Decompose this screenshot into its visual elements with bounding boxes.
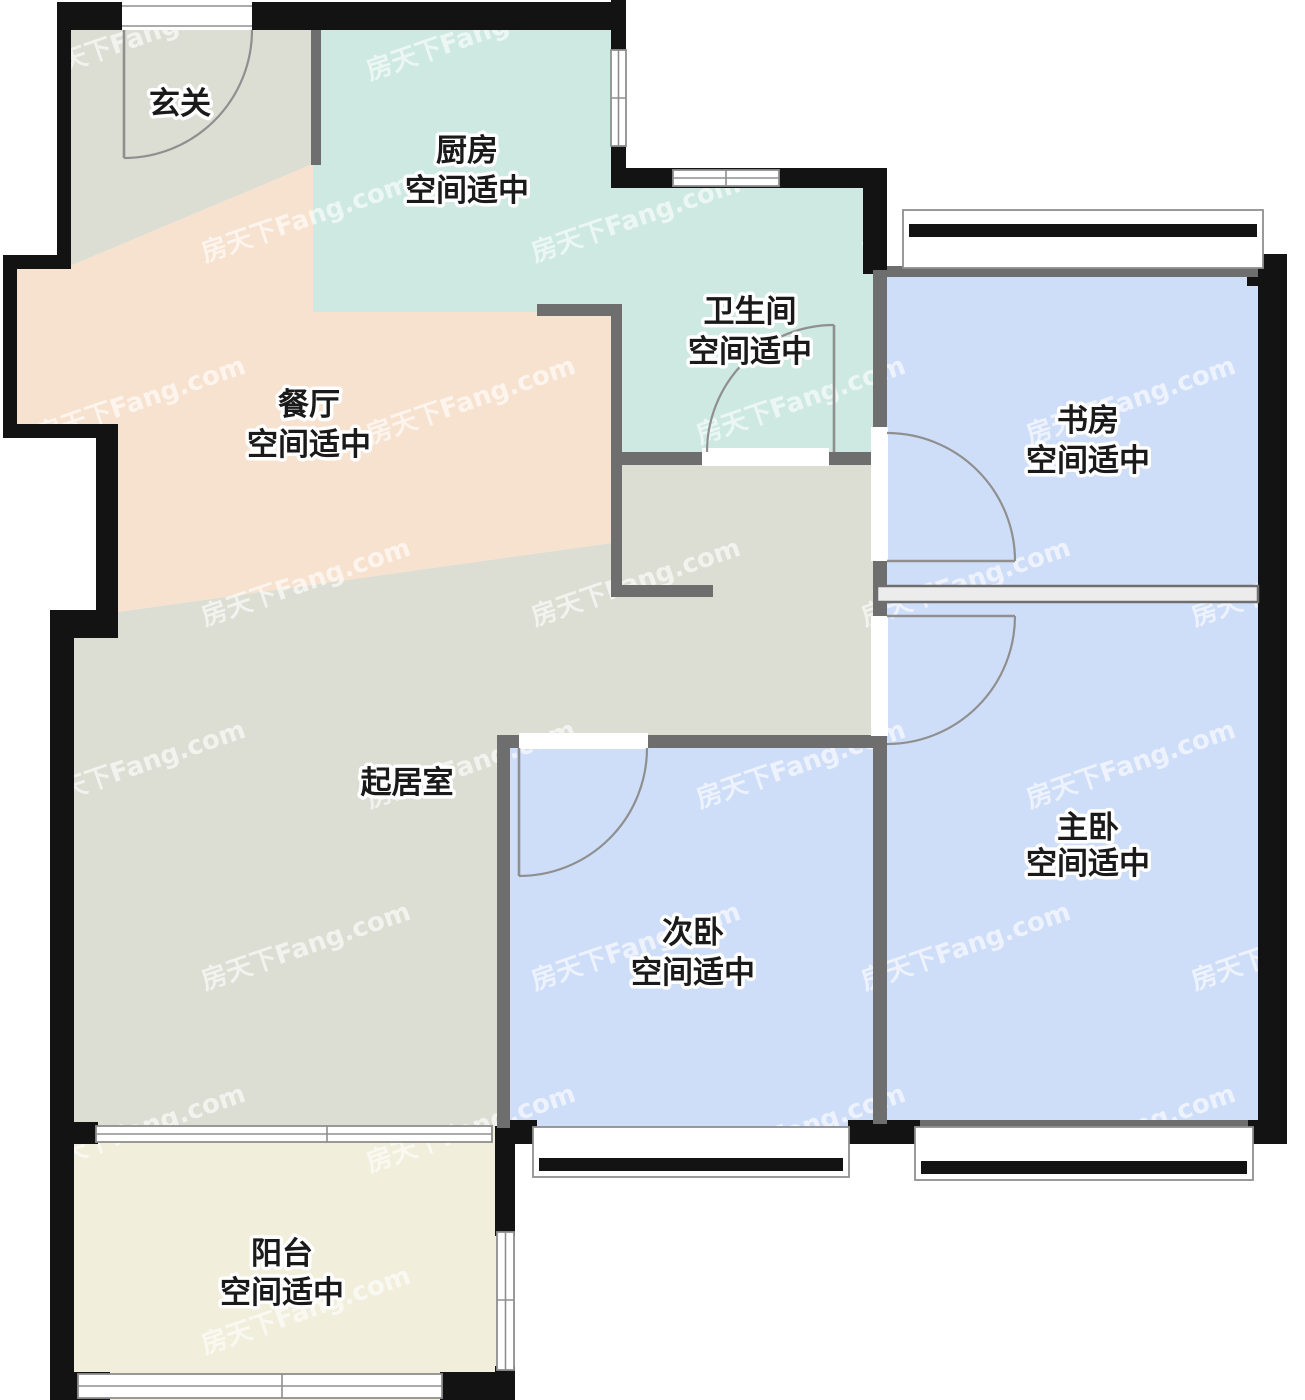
wall-balcony-top-stub: [74, 1122, 98, 1144]
wall-bathroom-bottom-left: [620, 452, 704, 465]
study-door-opening: [871, 427, 888, 561]
label-bathroom-note: 空间适中: [688, 334, 812, 370]
wall-kitchen-right-upper: [611, 0, 626, 52]
wall-left-bottom: [50, 610, 74, 1400]
master-bedroom-door-opening: [871, 616, 888, 736]
label-kitchen-note: 空间适中: [405, 173, 529, 209]
watermark-text: 房天下Fang.com: [528, 1261, 745, 1361]
secondary-bay-window-outer-band: [539, 1158, 843, 1171]
wall-bathroom-study: [873, 270, 887, 427]
floor-plan-canvas: 房天下Fang.com房天下Fang.com房天下Fang.com房天下Fang…: [0, 0, 1305, 1400]
label-kitchen: 厨房: [436, 133, 498, 169]
wall-secondary-left: [497, 748, 510, 1128]
wall-master-bay-line: [920, 1120, 1248, 1127]
wall-study-master-divider: [877, 586, 1258, 602]
label-study: 书房: [1057, 403, 1119, 439]
label-study-note: 空间适中: [1026, 443, 1150, 479]
wall-secondary-top-left: [497, 735, 519, 748]
label-bathroom: 卫生间: [704, 294, 797, 330]
wall-right-outer: [1258, 254, 1287, 1144]
label-secondary-bedroom-note: 空间适中: [631, 955, 755, 991]
label-balcony-note: 空间适中: [220, 1275, 344, 1311]
wall-corridor-outer-right: [863, 168, 887, 274]
wall-foyer-kitchen: [311, 30, 321, 165]
wall-bathroom-bottom-right: [829, 452, 873, 465]
floor-plan: 房天下Fang.com房天下Fang.com房天下Fang.com房天下Fang…: [0, 0, 1305, 1400]
wall-left-mid: [3, 255, 17, 438]
wall-living-master: [873, 736, 887, 1124]
secondary-bedroom-door-opening: [519, 733, 648, 749]
label-foyer: 玄关: [149, 86, 211, 122]
wall-top-right-segment: [252, 2, 625, 30]
watermark-text: 房天下Fang.com: [1188, 1261, 1305, 1361]
wall-corridor-niche: [611, 585, 713, 597]
room-kitchen-area: [313, 30, 626, 312]
bathroom-door-opening: [702, 448, 829, 466]
label-master-bedroom: 主卧: [1057, 810, 1119, 846]
label-living: 起居室: [361, 765, 454, 801]
master-bay-window-outer-band: [921, 1161, 1247, 1174]
wall-secondary-top-right: [648, 735, 887, 748]
label-dining-note: 空间适中: [247, 427, 371, 463]
wall-balcony-right-lower: [495, 1366, 515, 1400]
watermark-text: 房天下Fang.com: [858, 1261, 1075, 1361]
wall-corridor-vertical: [611, 304, 622, 597]
wall-kitchen-bottom-stub: [537, 304, 613, 316]
label-dining: 餐厅: [278, 387, 340, 423]
label-balcony: 阳台: [251, 1236, 313, 1272]
study-bay-window: [903, 210, 1263, 268]
watermark-text: 房天下Fang.com: [1023, 0, 1240, 87]
label-master-bedroom-note: 空间适中: [1026, 846, 1150, 882]
wall-left-upper: [57, 2, 71, 269]
wall-left-lower-mid: [96, 424, 118, 638]
watermark-text: 房天下Fang.com: [693, 0, 910, 87]
label-secondary-bedroom: 次卧: [662, 915, 724, 951]
study-bay-window-outer-band: [909, 224, 1257, 237]
